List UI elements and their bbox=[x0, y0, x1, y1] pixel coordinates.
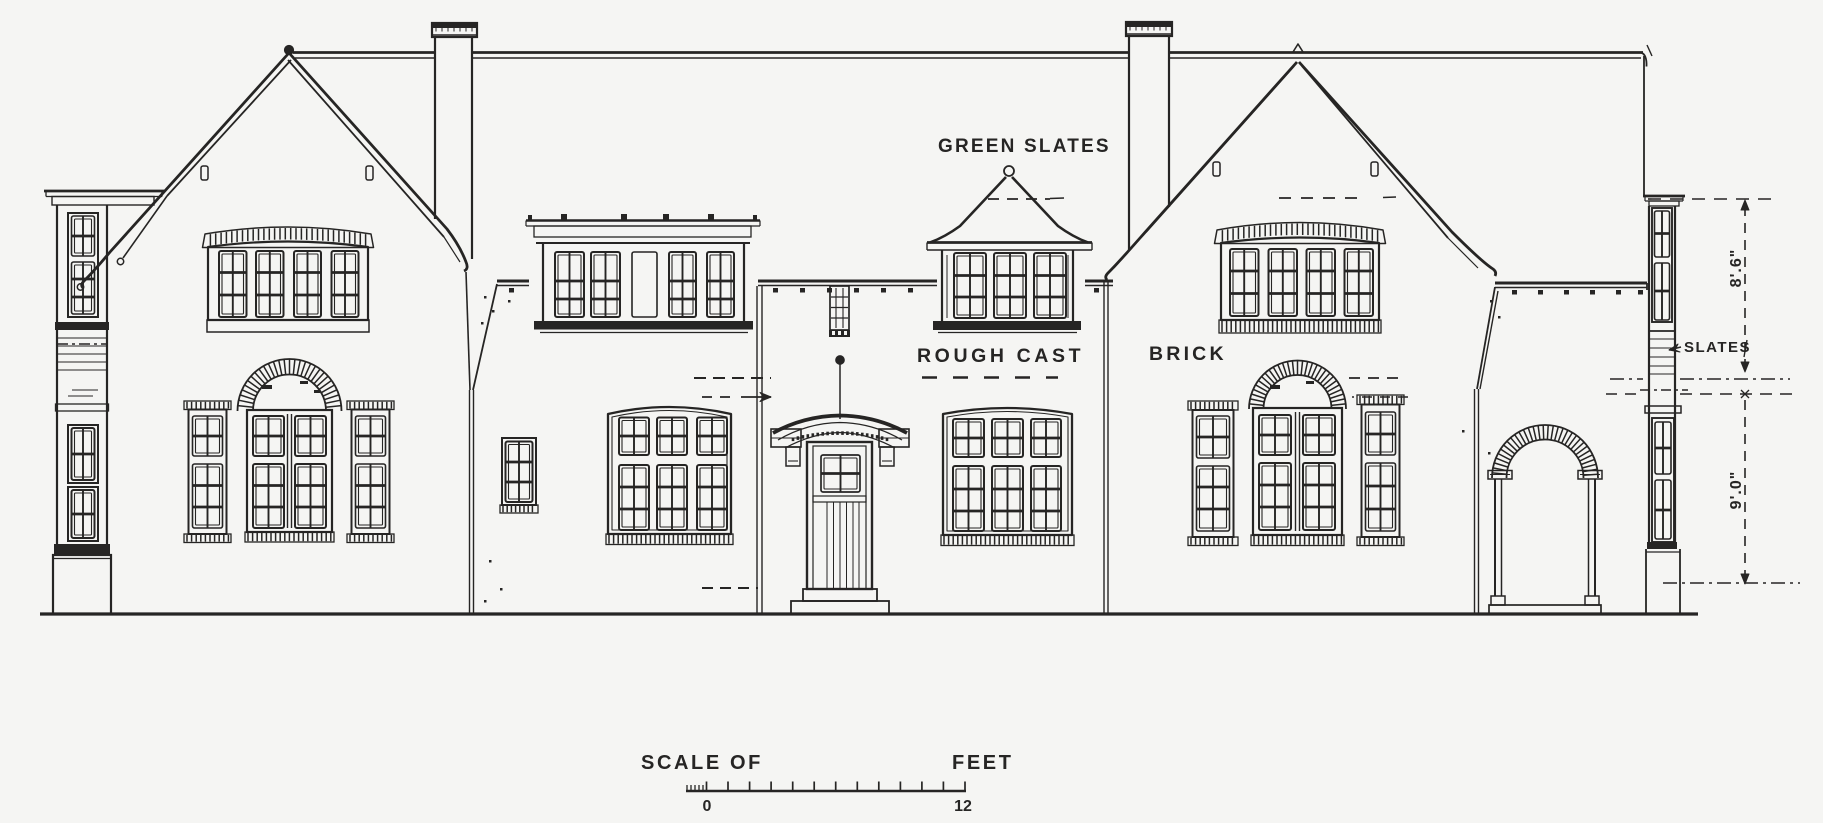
svg-text:SCALE OF: SCALE OF bbox=[641, 752, 763, 774]
svg-text:9'.0": 9'.0" bbox=[1728, 471, 1745, 510]
svg-text:SLATES: SLATES bbox=[1684, 339, 1751, 356]
svg-text:BRICK: BRICK bbox=[1149, 343, 1227, 365]
svg-text:ROUGH CAST: ROUGH CAST bbox=[917, 345, 1084, 367]
svg-text:0: 0 bbox=[703, 798, 712, 815]
svg-text:8'.6": 8'.6" bbox=[1728, 249, 1745, 288]
svg-text:FEET: FEET bbox=[952, 752, 1014, 774]
svg-text:GREEN SLATES: GREEN SLATES bbox=[938, 136, 1111, 157]
svg-text:12: 12 bbox=[954, 798, 972, 815]
